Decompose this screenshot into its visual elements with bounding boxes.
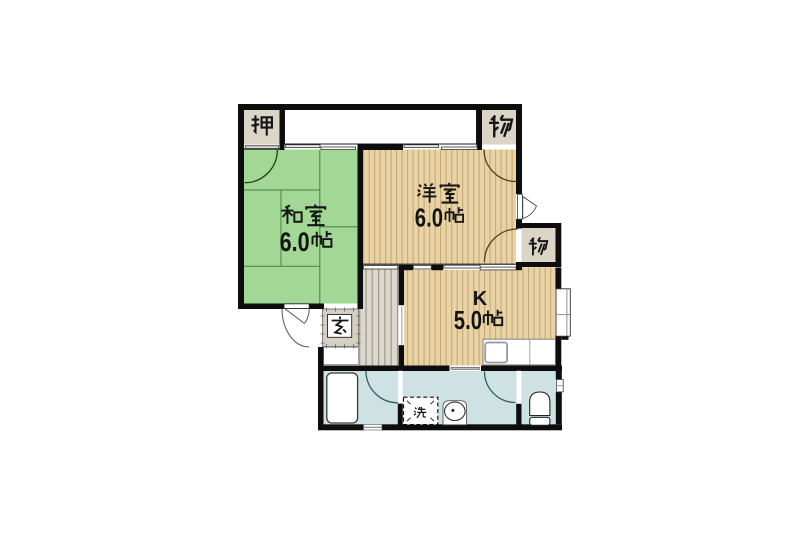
svg-text:5.0: 5.0	[454, 305, 482, 334]
svg-text:6.0: 6.0	[280, 228, 310, 258]
svg-text:6.0: 6.0	[415, 203, 443, 232]
